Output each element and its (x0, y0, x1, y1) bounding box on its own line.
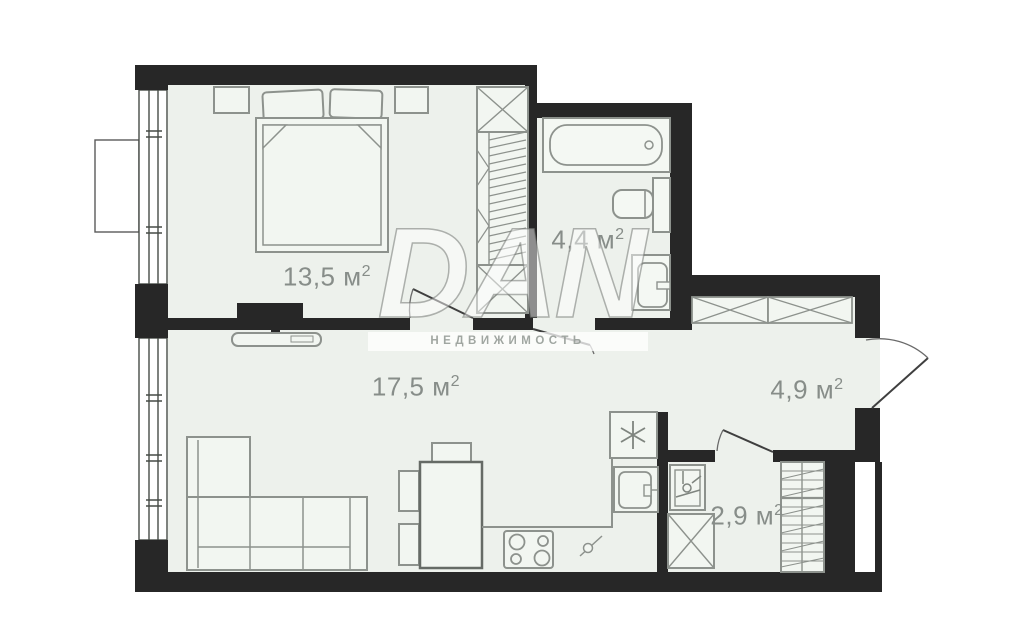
wall-hall-top (668, 275, 880, 297)
hall-wardrobe-2 (768, 297, 852, 323)
shaft-niche (855, 462, 875, 572)
double-bed (256, 118, 388, 252)
storage-cabinet-x (668, 514, 714, 568)
dining-table (420, 462, 482, 568)
wall-bed-living-b (473, 318, 533, 330)
tv-screen (237, 303, 303, 327)
dining-chair-left-1 (399, 471, 419, 511)
bathroom-sink (632, 255, 670, 310)
floor-plan-drawing (0, 0, 1024, 641)
wall-left-pier (135, 284, 168, 338)
wall-left-corner-bottom (135, 540, 168, 592)
wall-top-bedroom (135, 65, 537, 85)
stove (504, 531, 553, 568)
washing-machine (670, 465, 705, 510)
wall-storage-top (773, 450, 857, 462)
wall-left-corner-top (135, 65, 168, 90)
pillow-left (262, 89, 323, 121)
storage-doorway-floor (715, 450, 773, 462)
hall-wardrobe-1 (692, 297, 768, 323)
nightstand-right (395, 87, 428, 113)
storage-shelving (781, 462, 824, 572)
hallway-furniture (692, 297, 852, 323)
wall-storage-right (825, 462, 855, 572)
wall-right-below-door (855, 408, 880, 462)
wall-right-above-door (855, 297, 880, 338)
balcony-outline (95, 140, 139, 232)
pillow-right (330, 89, 383, 119)
nightstand-left (214, 87, 249, 113)
wall-bath-living (595, 318, 670, 330)
bedroom-window (139, 90, 167, 284)
fridge (610, 412, 657, 458)
floor-plan: 13,5 м2 4,4 м2 17,5 м2 4,9 м2 2,9 м2 DAN… (0, 0, 1024, 641)
wall-storage-arm (668, 450, 715, 462)
hallway-area-label: 4,9 м2 (770, 375, 843, 406)
bedroom-doorway-floor (410, 318, 473, 330)
kitchen-sink (614, 467, 658, 512)
bedroom-wardrobe (477, 87, 528, 313)
entrance-doorway-floor (855, 338, 880, 408)
kitchen-tap (644, 485, 651, 496)
bathroom-doorway-floor (533, 318, 595, 330)
storage-area-label: 2,9 м2 (710, 501, 783, 532)
dining-chair-left-2 (399, 524, 419, 565)
bedroom-area-label: 13,5 м2 (283, 262, 371, 293)
bathroom-area-label: 4,4 м2 (551, 225, 624, 256)
wall-niche-edge (875, 462, 882, 572)
tv-console (232, 333, 321, 346)
sink-tap (657, 282, 670, 289)
wall-bottom (135, 572, 882, 592)
dining-chair-top (432, 443, 471, 463)
wall-top-bathroom (537, 103, 692, 118)
bathtub (543, 118, 670, 172)
living-kitchen-area-label: 17,5 м2 (372, 372, 460, 403)
living-window (139, 338, 167, 540)
